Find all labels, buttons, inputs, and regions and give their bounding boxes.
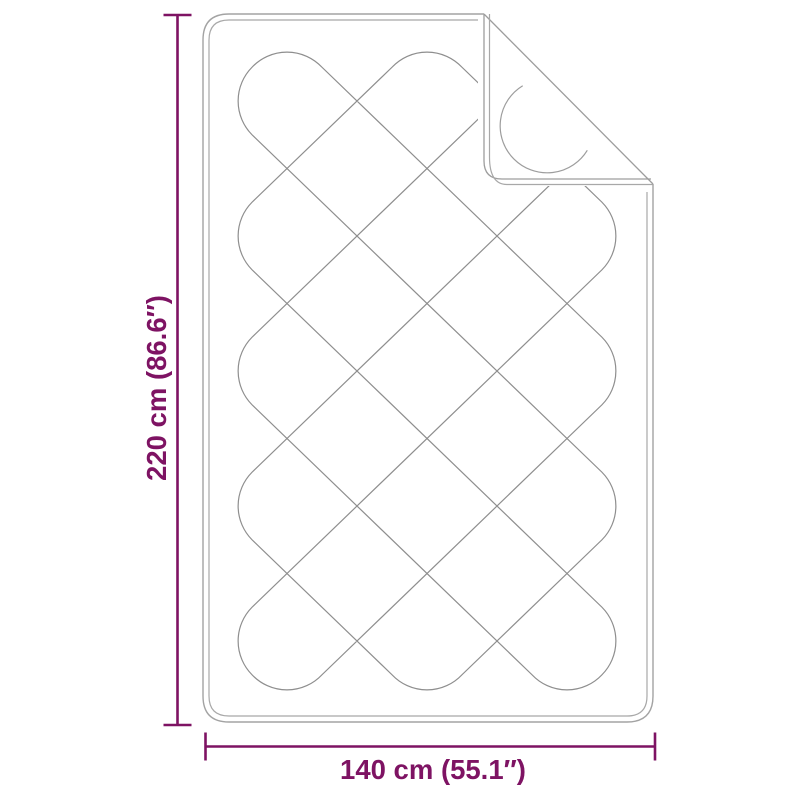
product-dimension-diagram: 220 cm (86.6″) 140 cm (55.1″)	[0, 0, 800, 800]
diagram-canvas: 220 cm (86.6″) 140 cm (55.1″)	[0, 0, 800, 800]
width-dimension-label: 140 cm (55.1″)	[340, 754, 526, 785]
folded-corner	[484, 14, 653, 185]
height-dimension-label: 220 cm (86.6″)	[141, 295, 172, 481]
